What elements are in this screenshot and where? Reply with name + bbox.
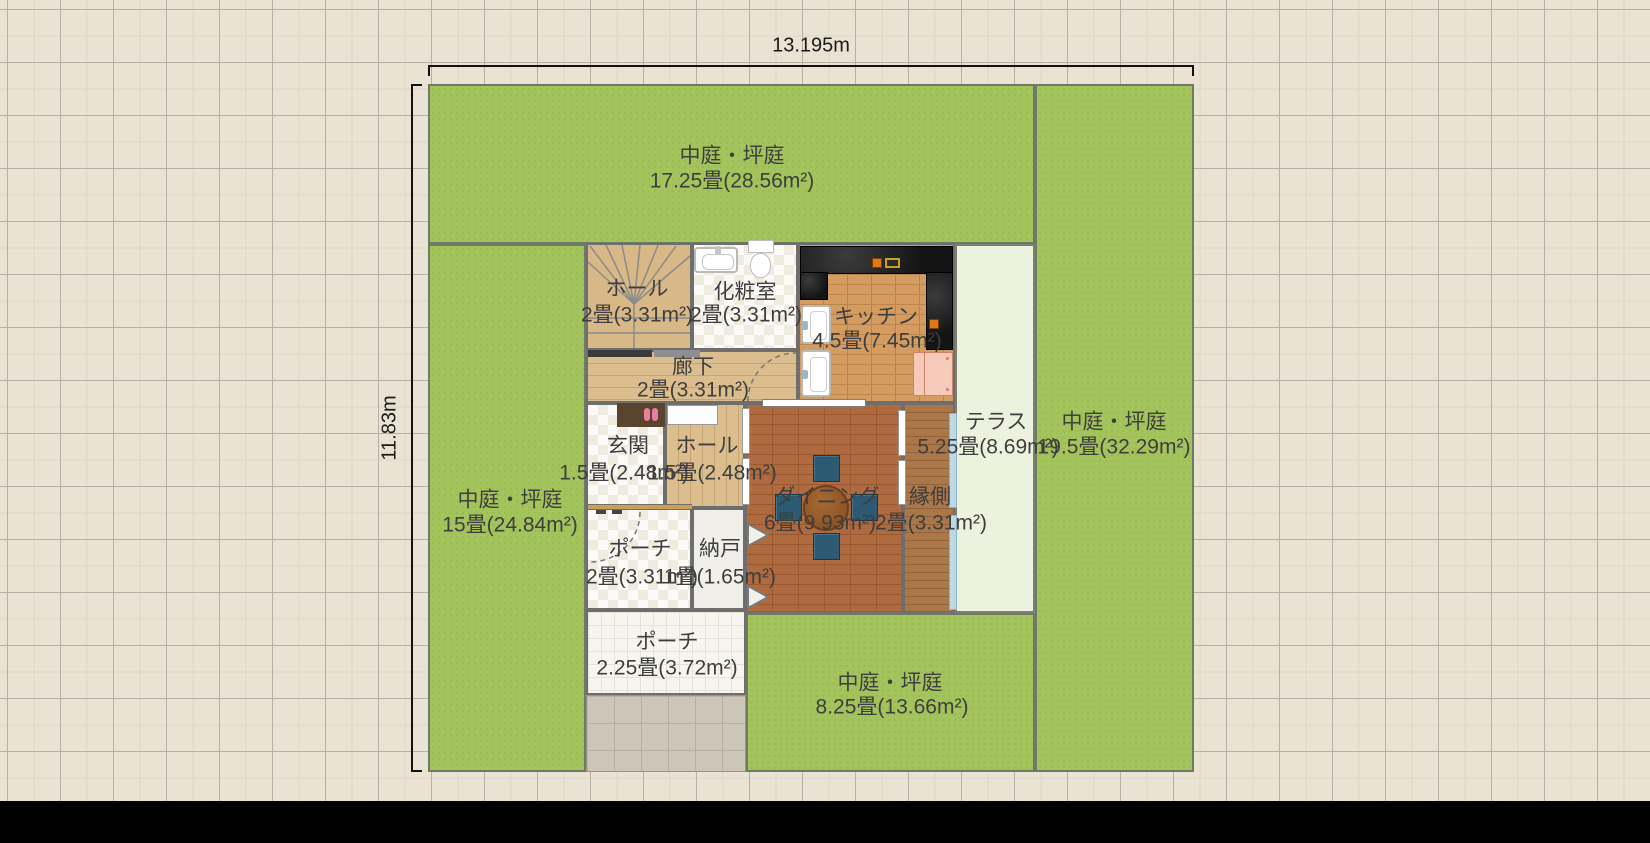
kitchen-counter-left[interactable] <box>800 272 828 300</box>
floorplan-canvas[interactable]: 13.195m 11.83m <box>0 0 1650 843</box>
porch-2-name: ポーチ <box>609 539 672 560</box>
dining-area: 6畳(9.93m²) <box>764 513 876 534</box>
kitchen-name: キッチン <box>834 307 918 328</box>
dining-sliding-door-left[interactable] <box>742 408 750 454</box>
garden-right-area: 19.5畳(32.29m²) <box>1038 437 1191 458</box>
terrace-area: 5.25畳(8.69m²) <box>917 437 1058 458</box>
faucet-icon <box>801 321 808 330</box>
engawa-name: 縁側 <box>909 487 951 508</box>
basin <box>810 357 827 392</box>
dining-name: ダイニング <box>775 487 880 508</box>
faucet-icon <box>801 370 808 379</box>
garden-bottom-name: 中庭・坪庭 <box>838 673 943 694</box>
dimension-line-top <box>428 65 1194 67</box>
dimension-height-label: 11.83m <box>379 395 402 460</box>
faucet-icon <box>715 246 721 254</box>
dimension-width-label: 13.195m <box>772 35 850 58</box>
slippers-icon <box>652 408 658 421</box>
kitchen-area: 4.5畳(7.45m²) <box>812 331 942 352</box>
garden-right-name: 中庭・坪庭 <box>1062 412 1167 433</box>
hall-closet[interactable] <box>667 405 718 425</box>
toilet-bowl <box>750 253 771 278</box>
toilet-icon[interactable] <box>748 240 774 280</box>
door-track-dot <box>612 510 622 514</box>
dimension-tick <box>411 770 422 772</box>
approach-tiles[interactable] <box>586 695 746 772</box>
basin <box>702 254 734 270</box>
storage-area: 1畳(1.65m²) <box>664 567 776 588</box>
fridge-dot <box>946 388 949 391</box>
dining-chair[interactable] <box>813 455 840 482</box>
storage-name: 納戸 <box>699 539 741 560</box>
dimension-line-left <box>411 84 413 772</box>
garden-left-name: 中庭・坪庭 <box>458 490 563 511</box>
entrance-door-sill[interactable] <box>588 504 692 509</box>
counter-appliance-icon[interactable] <box>929 319 939 329</box>
powder-room-name: 化粧室 <box>714 282 777 303</box>
bottom-black-bar <box>0 801 1650 843</box>
porch-225-name: ポーチ <box>636 632 699 653</box>
dining-window-right[interactable] <box>898 460 906 505</box>
slippers-icon <box>644 408 650 421</box>
garden-top-area: 17.25畳(28.56m²) <box>650 171 815 192</box>
corridor-cabinet-dark[interactable] <box>588 350 652 357</box>
dimension-tick <box>411 84 422 86</box>
dining-chair[interactable] <box>813 533 840 560</box>
hall-area: 1.5畳(2.48m²) <box>647 463 777 484</box>
porch-225-area: 2.25畳(3.72m²) <box>596 658 737 679</box>
dining-window-top[interactable] <box>762 399 866 407</box>
dining-window-right[interactable] <box>898 410 906 456</box>
stove-icon[interactable] <box>872 258 882 268</box>
washbasin-icon[interactable] <box>694 247 738 273</box>
corridor-area: 2畳(3.31m²) <box>637 380 749 401</box>
entrance-name: 玄関 <box>607 436 649 457</box>
dimension-tick <box>428 65 430 76</box>
dimension-tick <box>1192 65 1194 76</box>
garden-left-area: 15畳(24.84m²) <box>442 515 577 536</box>
stove-grate-icon <box>885 258 900 268</box>
kitchen-sink-lower[interactable] <box>801 350 831 397</box>
fridge-divider <box>924 353 925 397</box>
stair-hall-name: ホール <box>606 279 669 300</box>
toilet-tank <box>748 240 774 253</box>
terrace-name: テラス <box>965 412 1028 433</box>
refrigerator-icon[interactable] <box>913 352 953 396</box>
fridge-dot <box>946 357 949 360</box>
stair-hall-area: 2畳(3.31m²) <box>581 305 693 326</box>
garden-bottom-area: 8.25畳(13.66m²) <box>816 697 969 718</box>
hall-name: ホール <box>676 436 739 457</box>
powder-room-area: 2畳(3.31m²) <box>690 305 802 326</box>
engawa-area: 2畳(3.31m²) <box>875 513 987 534</box>
garden-top-name: 中庭・坪庭 <box>680 146 785 167</box>
door-track-dot <box>596 510 606 514</box>
corridor-name: 廊下 <box>672 357 714 378</box>
